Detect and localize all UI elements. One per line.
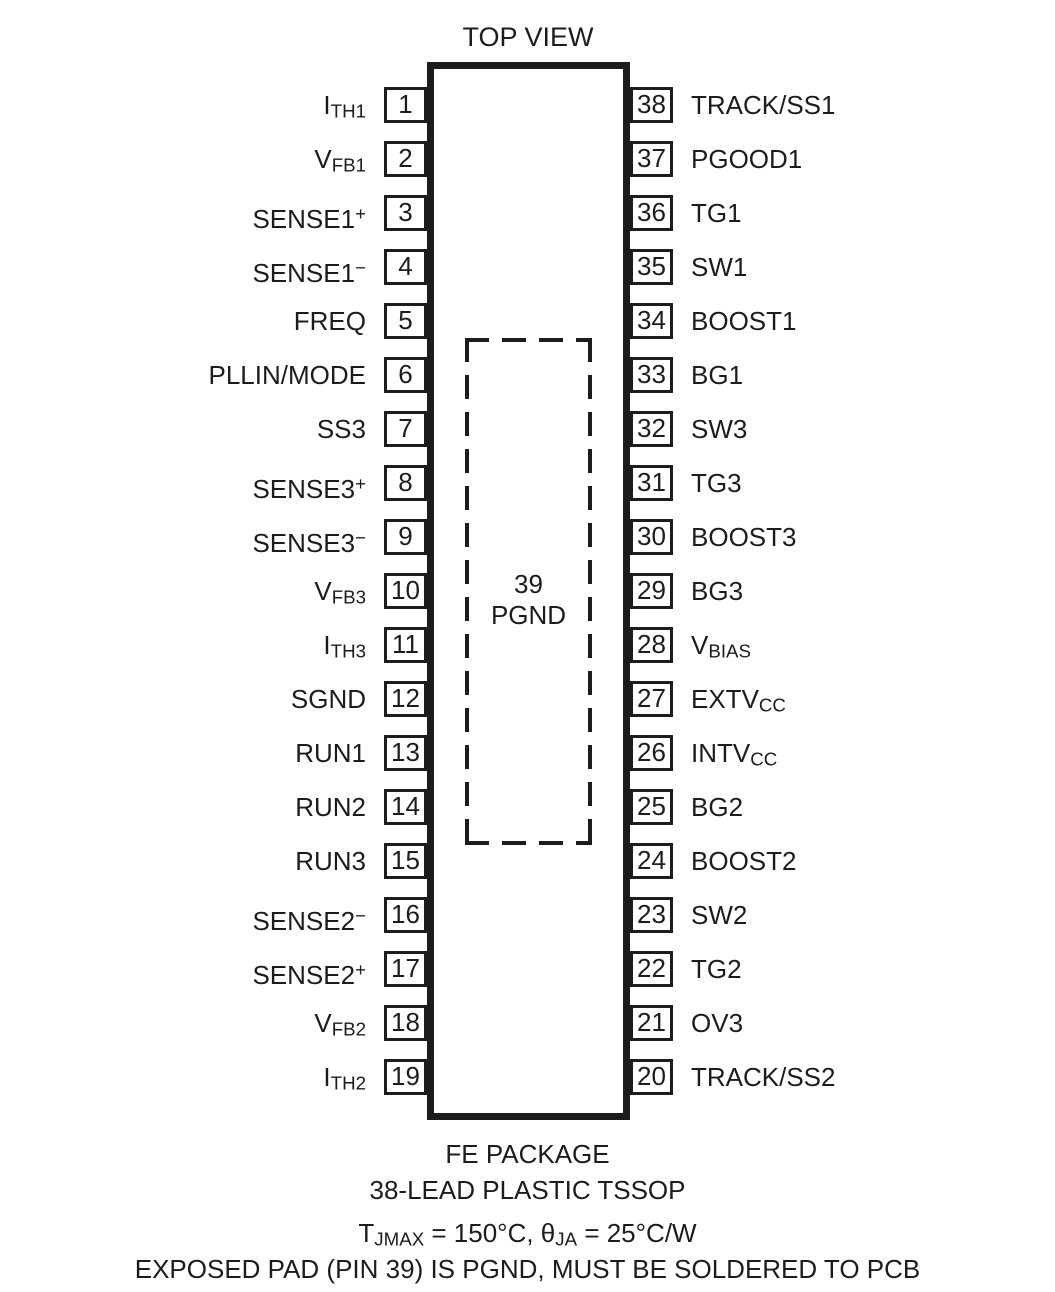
- pin-10-label: VFB3: [40, 573, 366, 609]
- pin-5-number-box: 5: [384, 303, 427, 339]
- pin-37-label: PGOOD1: [691, 141, 1021, 177]
- pin-19-label: ITH2: [40, 1059, 366, 1095]
- pin-26-label: INTVCC: [691, 735, 1021, 771]
- pin-24-label: BOOST2: [691, 843, 1021, 879]
- pin-18-label: VFB2: [40, 1005, 366, 1041]
- pin-29-label: BG3: [691, 573, 1021, 609]
- pin-2-label: VFB1: [40, 141, 366, 177]
- pin-33-label: BG1: [691, 357, 1021, 393]
- pin-5-label: FREQ: [40, 303, 366, 339]
- pin-12-number-box: 12: [384, 681, 427, 717]
- pin-20-label: TRACK/SS2: [691, 1059, 1021, 1095]
- pin-33-number-box: 33: [630, 357, 673, 393]
- pin-34-number-box: 34: [630, 303, 673, 339]
- pin-38-label: TRACK/SS1: [691, 87, 1021, 123]
- pin-35-label: SW1: [691, 249, 1021, 285]
- pin-9-number-box: 9: [384, 519, 427, 555]
- pin-22-number-box: 22: [630, 951, 673, 987]
- footer: FE PACKAGE 38-LEAD PLASTIC TSSOP TJMAX =…: [0, 1136, 1055, 1284]
- pin-1-label: ITH1: [40, 87, 366, 123]
- pin-14-label: RUN2: [40, 789, 366, 825]
- pin-15-label: RUN3: [40, 843, 366, 879]
- pin-21-label: OV3: [691, 1005, 1021, 1041]
- pin-21-number-box: 21: [630, 1005, 673, 1041]
- pin-4-number-box: 4: [384, 249, 427, 285]
- pin-6-number-box: 6: [384, 357, 427, 393]
- pin-10-number-box: 10: [384, 573, 427, 609]
- pin-25-number-box: 25: [630, 789, 673, 825]
- pin-9-label: SENSE3−: [40, 519, 366, 555]
- exposed-pad-note: EXPOSED PAD (PIN 39) IS PGND, MUST BE SO…: [0, 1254, 1055, 1284]
- pin-11-label: ITH3: [40, 627, 366, 663]
- pin-6-label: PLLIN/MODE: [40, 357, 366, 393]
- pin-23-label: SW2: [691, 897, 1021, 933]
- pin-16-label: SENSE2−: [40, 897, 366, 933]
- pin-23-number-box: 23: [630, 897, 673, 933]
- pin-17-number-box: 17: [384, 951, 427, 987]
- pin-28-label: VBIAS: [691, 627, 1021, 663]
- pin-13-number-box: 13: [384, 735, 427, 771]
- pin-30-number-box: 30: [630, 519, 673, 555]
- pin-32-number-box: 32: [630, 411, 673, 447]
- pin-rows: ITH1138TRACK/SS1VFB1237PGOOD1SENSE1+336T…: [0, 0, 1055, 1292]
- pin-22-label: TG2: [691, 951, 1021, 987]
- pin-16-number-box: 16: [384, 897, 427, 933]
- pin-24-number-box: 24: [630, 843, 673, 879]
- pin-3-number-box: 3: [384, 195, 427, 231]
- pin-2-number-box: 2: [384, 141, 427, 177]
- pin-8-number-box: 8: [384, 465, 427, 501]
- pin-36-number-box: 36: [630, 195, 673, 231]
- pin-12-label: SGND: [40, 681, 366, 717]
- pin-28-number-box: 28: [630, 627, 673, 663]
- pin-26-number-box: 26: [630, 735, 673, 771]
- pin-7-number-box: 7: [384, 411, 427, 447]
- pin-20-number-box: 20: [630, 1059, 673, 1095]
- pin-4-label: SENSE1−: [40, 249, 366, 285]
- pin-25-label: BG2: [691, 789, 1021, 825]
- pin-17-label: SENSE2+: [40, 951, 366, 987]
- package-name: FE PACKAGE: [0, 1136, 1055, 1172]
- pin-35-number-box: 35: [630, 249, 673, 285]
- pin-36-label: TG1: [691, 195, 1021, 231]
- pin-38-number-box: 38: [630, 87, 673, 123]
- pin-27-label: EXTVCC: [691, 681, 1021, 717]
- pin-30-label: BOOST3: [691, 519, 1021, 555]
- pin-37-number-box: 37: [630, 141, 673, 177]
- package-description: 38-LEAD PLASTIC TSSOP: [0, 1172, 1055, 1208]
- pin-19-number-box: 19: [384, 1059, 427, 1095]
- pin-14-number-box: 14: [384, 789, 427, 825]
- pin-15-number-box: 15: [384, 843, 427, 879]
- pinout-diagram: TOP VIEW 39 PGND ITH1138TRACK/SS1VFB1237…: [0, 0, 1055, 1292]
- pin-11-number-box: 11: [384, 627, 427, 663]
- pin-31-label: TG3: [691, 465, 1021, 501]
- pin-8-label: SENSE3+: [40, 465, 366, 501]
- pin-18-number-box: 18: [384, 1005, 427, 1041]
- pin-3-label: SENSE1+: [40, 195, 366, 231]
- pin-27-number-box: 27: [630, 681, 673, 717]
- thermal-note: TJMAX = 150°C, θJA = 25°C/W: [0, 1218, 1055, 1254]
- pin-13-label: RUN1: [40, 735, 366, 771]
- pin-7-label: SS3: [40, 411, 366, 447]
- pin-34-label: BOOST1: [691, 303, 1021, 339]
- pin-1-number-box: 1: [384, 87, 427, 123]
- pin-32-label: SW3: [691, 411, 1021, 447]
- pin-29-number-box: 29: [630, 573, 673, 609]
- pin-31-number-box: 31: [630, 465, 673, 501]
